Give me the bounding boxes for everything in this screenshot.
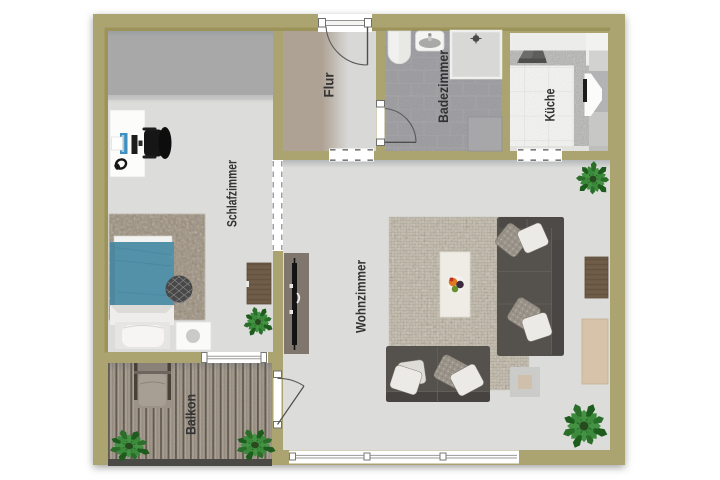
svg-text:Schlafzimmer: Schlafzimmer	[224, 160, 240, 227]
svg-text:Balkon: Balkon	[183, 394, 199, 435]
svg-text:Küche: Küche	[542, 88, 558, 121]
svg-text:Wohnzimmer: Wohnzimmer	[353, 260, 369, 333]
svg-text:Flur: Flur	[321, 72, 337, 98]
svg-text:Badezimmer: Badezimmer	[435, 50, 451, 123]
